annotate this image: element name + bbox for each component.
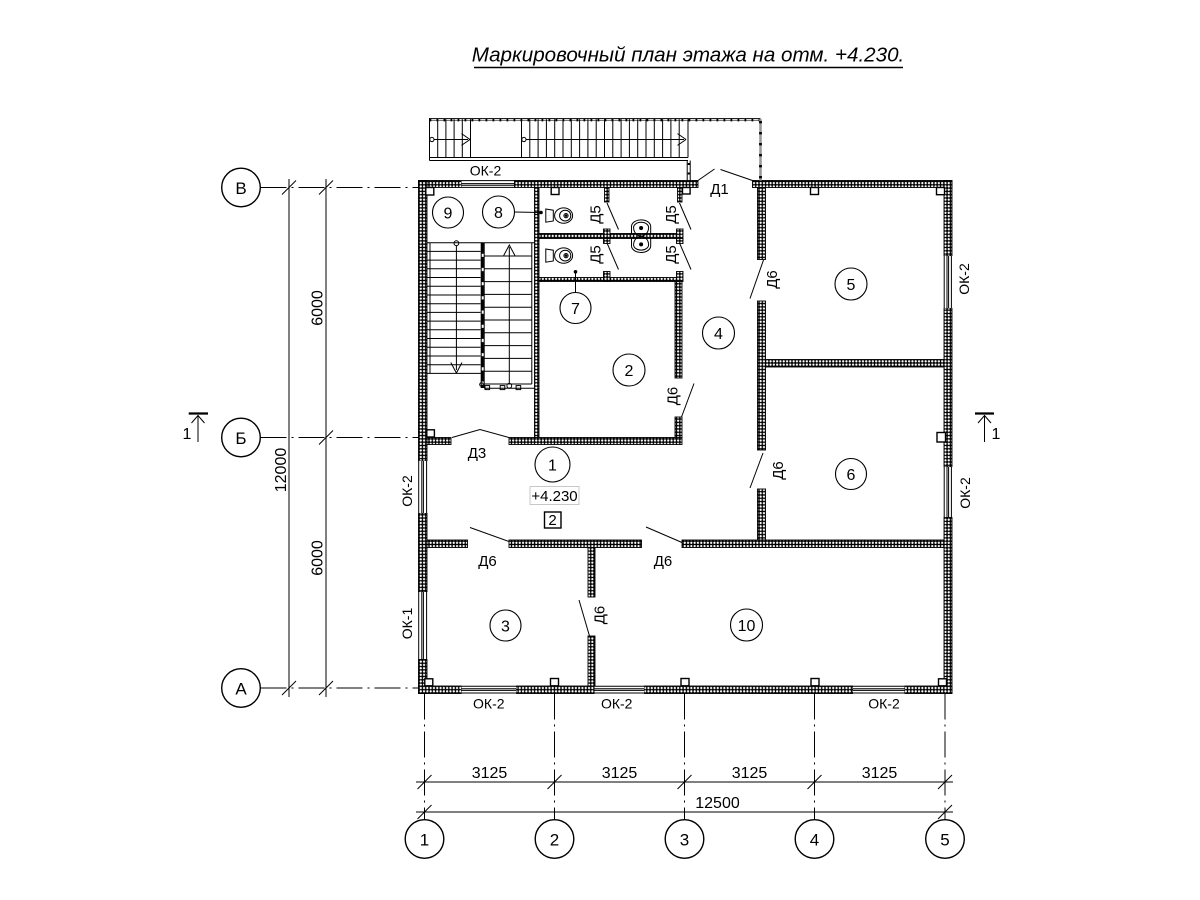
svg-text:Д5: Д5 bbox=[588, 245, 605, 264]
svg-text:Д6: Д6 bbox=[654, 553, 673, 570]
svg-text:2: 2 bbox=[548, 512, 556, 529]
svg-text:12500: 12500 bbox=[695, 795, 740, 812]
svg-text:Маркировочный план этажа на от: Маркировочный план этажа на отм. +4.230. bbox=[472, 44, 905, 67]
svg-text:Б: Б bbox=[235, 429, 246, 448]
svg-text:2: 2 bbox=[625, 363, 634, 380]
svg-text:В: В bbox=[235, 179, 246, 198]
svg-text:Д5: Д5 bbox=[663, 245, 680, 264]
svg-text:Д1: Д1 bbox=[710, 181, 729, 198]
svg-text:3: 3 bbox=[501, 619, 510, 636]
svg-text:1: 1 bbox=[420, 831, 429, 850]
svg-text:ОК-2: ОК-2 bbox=[957, 477, 973, 509]
svg-text:Д5: Д5 bbox=[588, 205, 605, 224]
svg-text:Д3: Д3 bbox=[468, 445, 487, 462]
svg-text:3125: 3125 bbox=[472, 765, 508, 782]
svg-text:9: 9 bbox=[444, 206, 453, 223]
svg-text:Д6: Д6 bbox=[592, 606, 609, 625]
svg-text:6: 6 bbox=[847, 467, 856, 484]
svg-text:12000: 12000 bbox=[273, 448, 290, 493]
svg-text:7: 7 bbox=[571, 301, 580, 318]
svg-text:6000: 6000 bbox=[310, 290, 327, 326]
svg-text:Д6: Д6 bbox=[764, 270, 781, 289]
svg-text:5: 5 bbox=[940, 831, 949, 850]
svg-text:4: 4 bbox=[714, 326, 723, 343]
svg-text:3125: 3125 bbox=[862, 765, 898, 782]
svg-text:+4.230: +4.230 bbox=[531, 488, 577, 505]
svg-text:Д5: Д5 bbox=[663, 205, 680, 224]
svg-text:1: 1 bbox=[992, 426, 1001, 443]
svg-text:ОК-2: ОК-2 bbox=[956, 263, 972, 295]
svg-text:3125: 3125 bbox=[602, 765, 638, 782]
svg-text:ОК-2: ОК-2 bbox=[868, 696, 900, 712]
svg-text:8: 8 bbox=[494, 205, 503, 222]
svg-text:ОК-1: ОК-1 bbox=[399, 608, 415, 640]
svg-text:ОК-2: ОК-2 bbox=[473, 696, 505, 712]
svg-text:ОК-2: ОК-2 bbox=[601, 696, 633, 712]
svg-text:10: 10 bbox=[738, 618, 756, 635]
svg-text:3125: 3125 bbox=[732, 765, 768, 782]
svg-text:А: А bbox=[235, 680, 247, 699]
svg-text:ОК-2: ОК-2 bbox=[470, 163, 502, 179]
svg-text:Д6: Д6 bbox=[770, 461, 787, 480]
svg-text:4: 4 bbox=[810, 831, 819, 850]
svg-text:1: 1 bbox=[183, 426, 192, 443]
svg-text:1: 1 bbox=[548, 458, 557, 475]
svg-text:ОК-2: ОК-2 bbox=[399, 475, 415, 507]
svg-text:2: 2 bbox=[550, 831, 559, 850]
svg-text:Д6: Д6 bbox=[478, 553, 497, 570]
svg-text:5: 5 bbox=[847, 277, 856, 294]
svg-text:Д6: Д6 bbox=[665, 387, 682, 406]
svg-text:6000: 6000 bbox=[310, 540, 327, 576]
svg-text:3: 3 bbox=[680, 831, 689, 850]
